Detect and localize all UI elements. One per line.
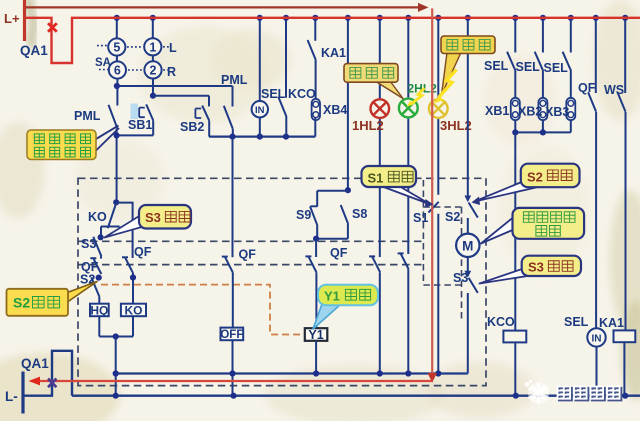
svg-text:XB3: XB3 — [545, 105, 569, 119]
svg-text:S1: S1 — [368, 171, 384, 186]
svg-text:L-: L- — [5, 389, 18, 404]
svg-text:HQ: HQ — [90, 303, 108, 317]
svg-text:S2: S2 — [445, 210, 460, 224]
svg-text:XB2: XB2 — [518, 105, 542, 119]
svg-text:SEL: SEL — [484, 59, 509, 73]
svg-text:SEL: SEL — [261, 87, 286, 101]
svg-text:PML: PML — [221, 73, 248, 87]
svg-text:KA1: KA1 — [321, 46, 346, 60]
svg-text:L: L — [169, 41, 177, 55]
svg-text:S9: S9 — [296, 208, 311, 222]
svg-text:SEL: SEL — [564, 315, 589, 329]
svg-text:QA1: QA1 — [21, 356, 49, 371]
svg-text:S1: S1 — [413, 211, 428, 225]
svg-text:SB1: SB1 — [128, 118, 152, 132]
svg-text:XB4: XB4 — [323, 103, 347, 117]
svg-text:KCO: KCO — [487, 315, 515, 329]
svg-text:PML: PML — [74, 109, 101, 123]
svg-text:QF: QF — [578, 81, 596, 95]
svg-text:KCO: KCO — [288, 87, 316, 101]
svg-text:S3: S3 — [145, 210, 161, 225]
svg-text:QF: QF — [330, 246, 348, 260]
svg-text:S2: S2 — [13, 295, 30, 311]
svg-text:1: 1 — [149, 40, 156, 54]
svg-text:Y1: Y1 — [324, 289, 340, 304]
svg-text:XB1: XB1 — [485, 104, 509, 118]
svg-text:QF: QF — [134, 245, 152, 259]
svg-text:SA: SA — [95, 57, 111, 69]
svg-text:IN: IN — [255, 105, 265, 116]
svg-text:1HL2: 1HL2 — [352, 118, 384, 133]
svg-text:S3: S3 — [528, 260, 544, 275]
svg-text:KO: KO — [124, 303, 142, 317]
svg-text:R: R — [167, 65, 176, 79]
svg-text:6: 6 — [114, 64, 121, 78]
svg-text:OFF: OFF — [220, 329, 243, 341]
svg-text:L+: L+ — [4, 11, 20, 26]
svg-text:M: M — [462, 238, 473, 253]
svg-text:IN: IN — [592, 334, 602, 345]
svg-text:WS: WS — [604, 83, 624, 97]
svg-text:S8: S8 — [352, 207, 367, 221]
svg-text:S3: S3 — [453, 271, 468, 285]
svg-text:KO: KO — [88, 210, 107, 224]
svg-text:2: 2 — [150, 63, 157, 77]
svg-text:SB2: SB2 — [180, 120, 204, 134]
svg-text:SEL: SEL — [516, 60, 541, 74]
svg-text:KA1: KA1 — [599, 316, 624, 330]
svg-text:S3: S3 — [81, 237, 96, 251]
svg-text:SEL: SEL — [544, 61, 569, 75]
svg-text:Y1: Y1 — [308, 328, 323, 342]
svg-text:QF: QF — [239, 248, 257, 262]
svg-text:QA1: QA1 — [20, 43, 48, 58]
svg-text:S2: S2 — [527, 170, 543, 185]
svg-text:5: 5 — [113, 41, 120, 55]
